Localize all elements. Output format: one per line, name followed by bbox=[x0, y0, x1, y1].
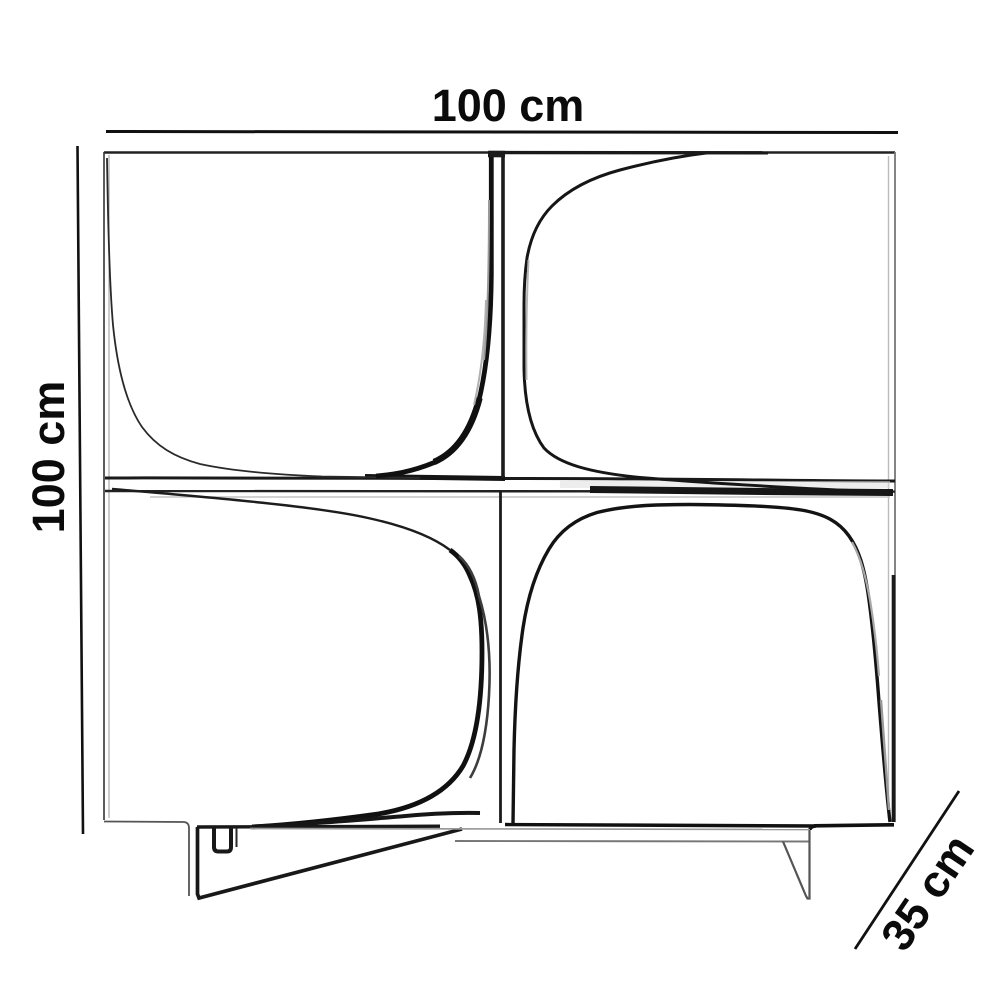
svg-text:100 cm: 100 cm bbox=[432, 80, 585, 131]
svg-text:100 cm: 100 cm bbox=[23, 381, 74, 534]
svg-text:35 cm: 35 cm bbox=[871, 825, 985, 959]
